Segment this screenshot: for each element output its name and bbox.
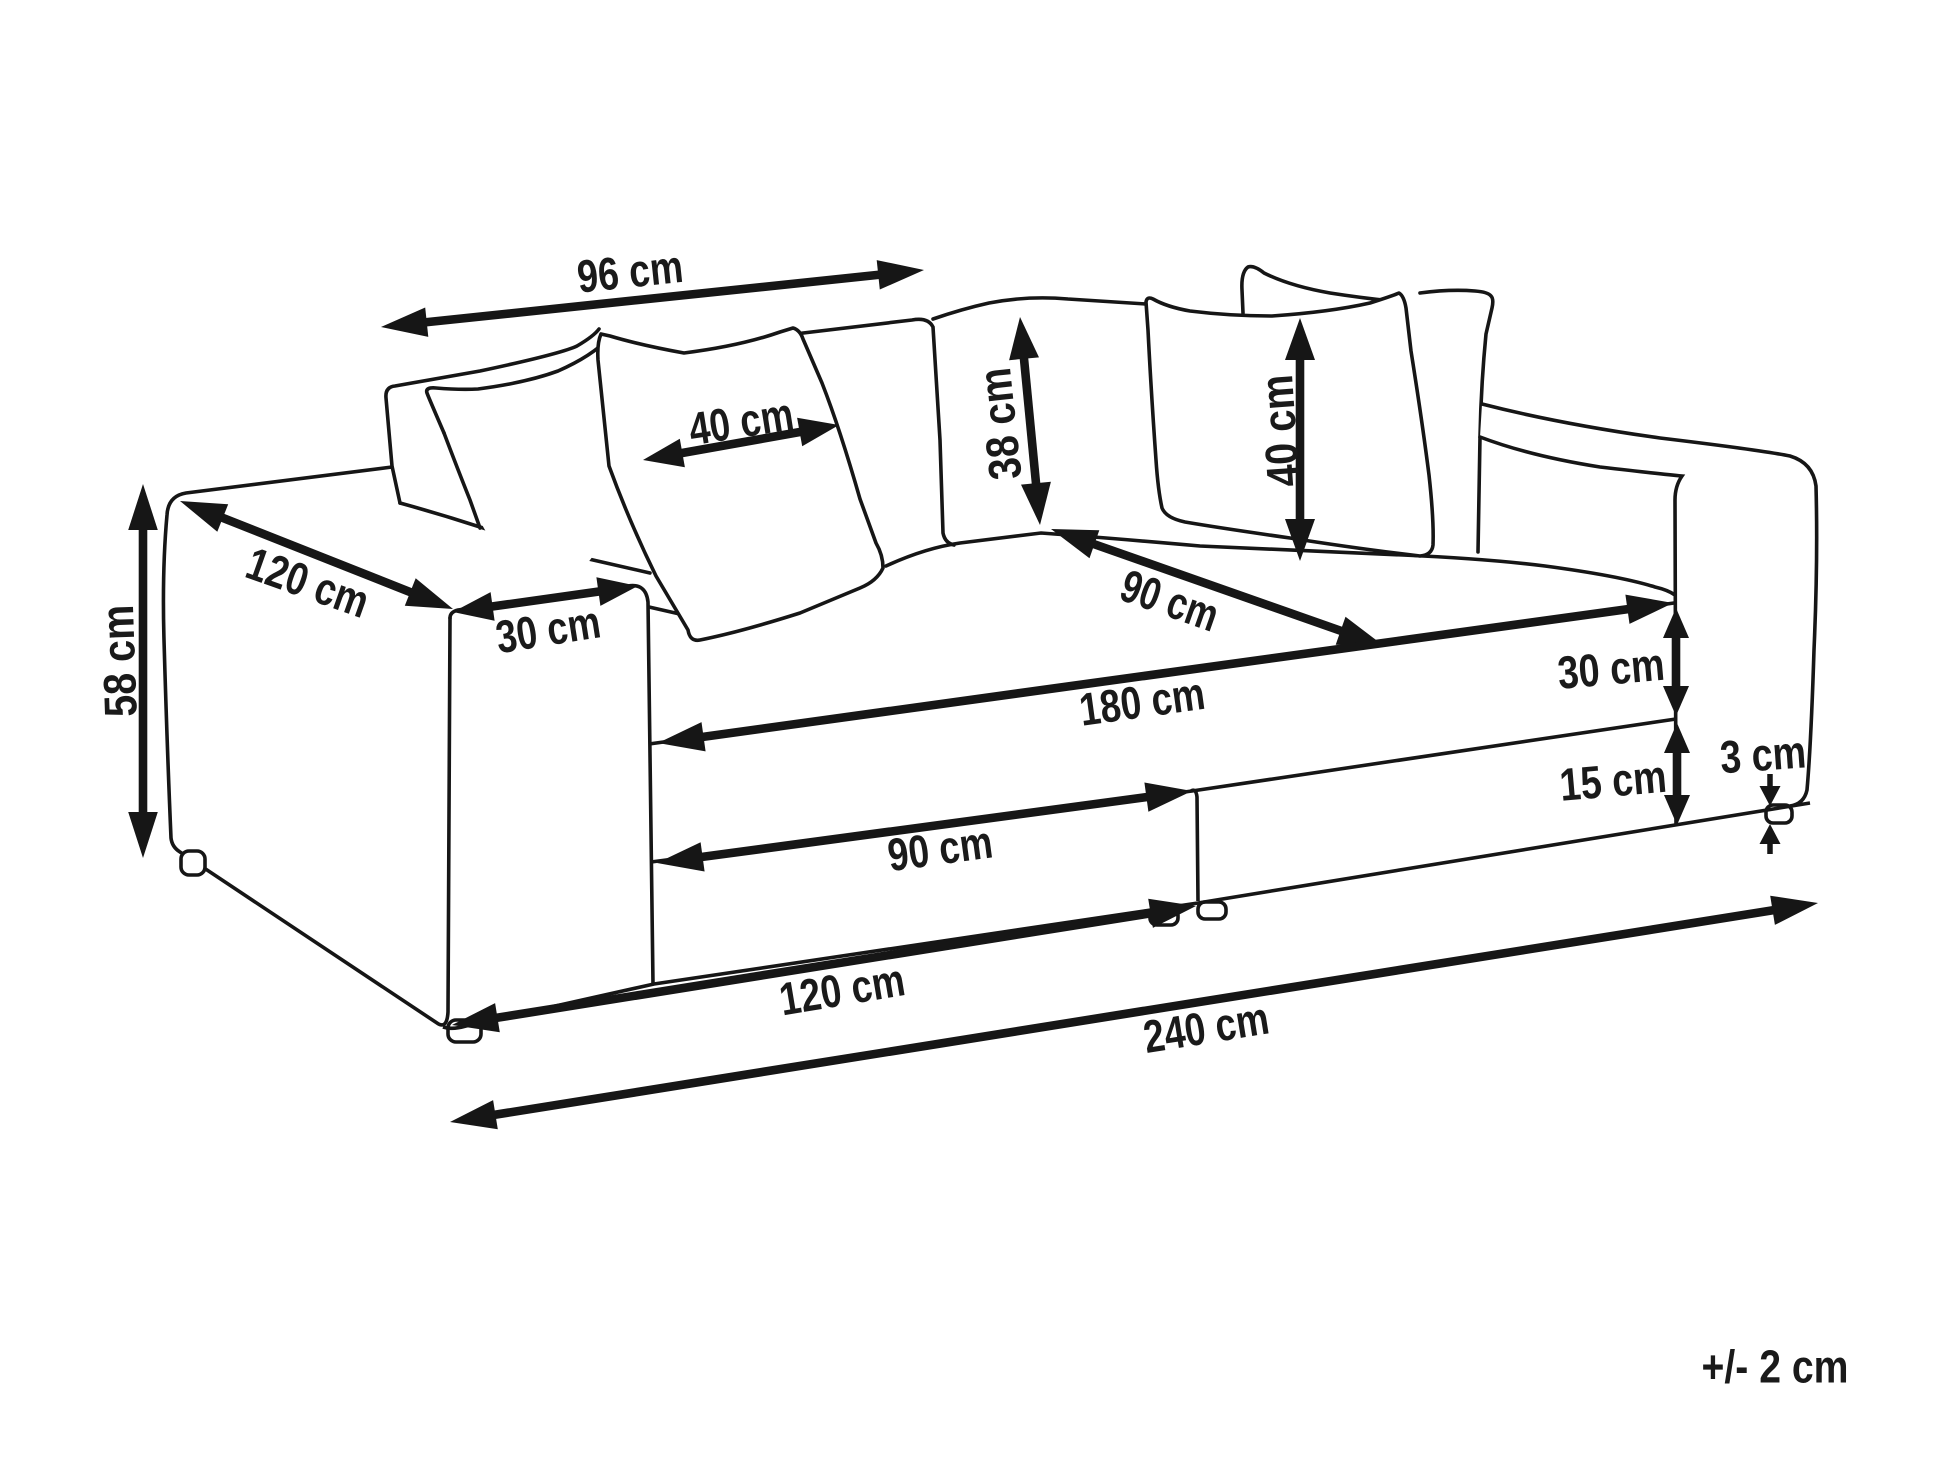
svg-text:58 cm: 58 cm [91,604,147,718]
svg-text:+/- 2 cm: +/- 2 cm [1702,1340,1849,1392]
svg-text:40 cm: 40 cm [1250,373,1310,488]
svg-text:15 cm: 15 cm [1557,750,1668,811]
svg-text:96 cm: 96 cm [575,240,686,303]
svg-text:3 cm: 3 cm [1718,725,1807,783]
svg-text:30 cm: 30 cm [1555,638,1666,699]
